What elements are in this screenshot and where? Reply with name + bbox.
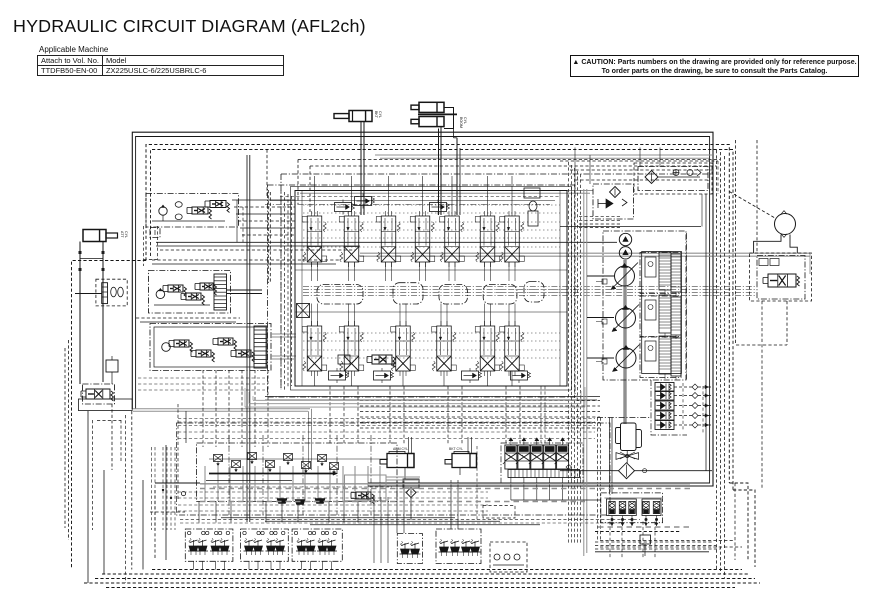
svg-text:BOOM: BOOM	[459, 117, 463, 128]
svg-text:ARM CYL: ARM CYL	[393, 447, 408, 451]
svg-text:CYL: CYL	[378, 111, 382, 118]
svg-text:BKT CYL: BKT CYL	[449, 447, 463, 451]
svg-text:CYL: CYL	[124, 231, 128, 238]
svg-text:ATT: ATT	[120, 231, 124, 238]
svg-text:BKT: BKT	[374, 111, 378, 119]
svg-text:CYL: CYL	[463, 117, 467, 124]
